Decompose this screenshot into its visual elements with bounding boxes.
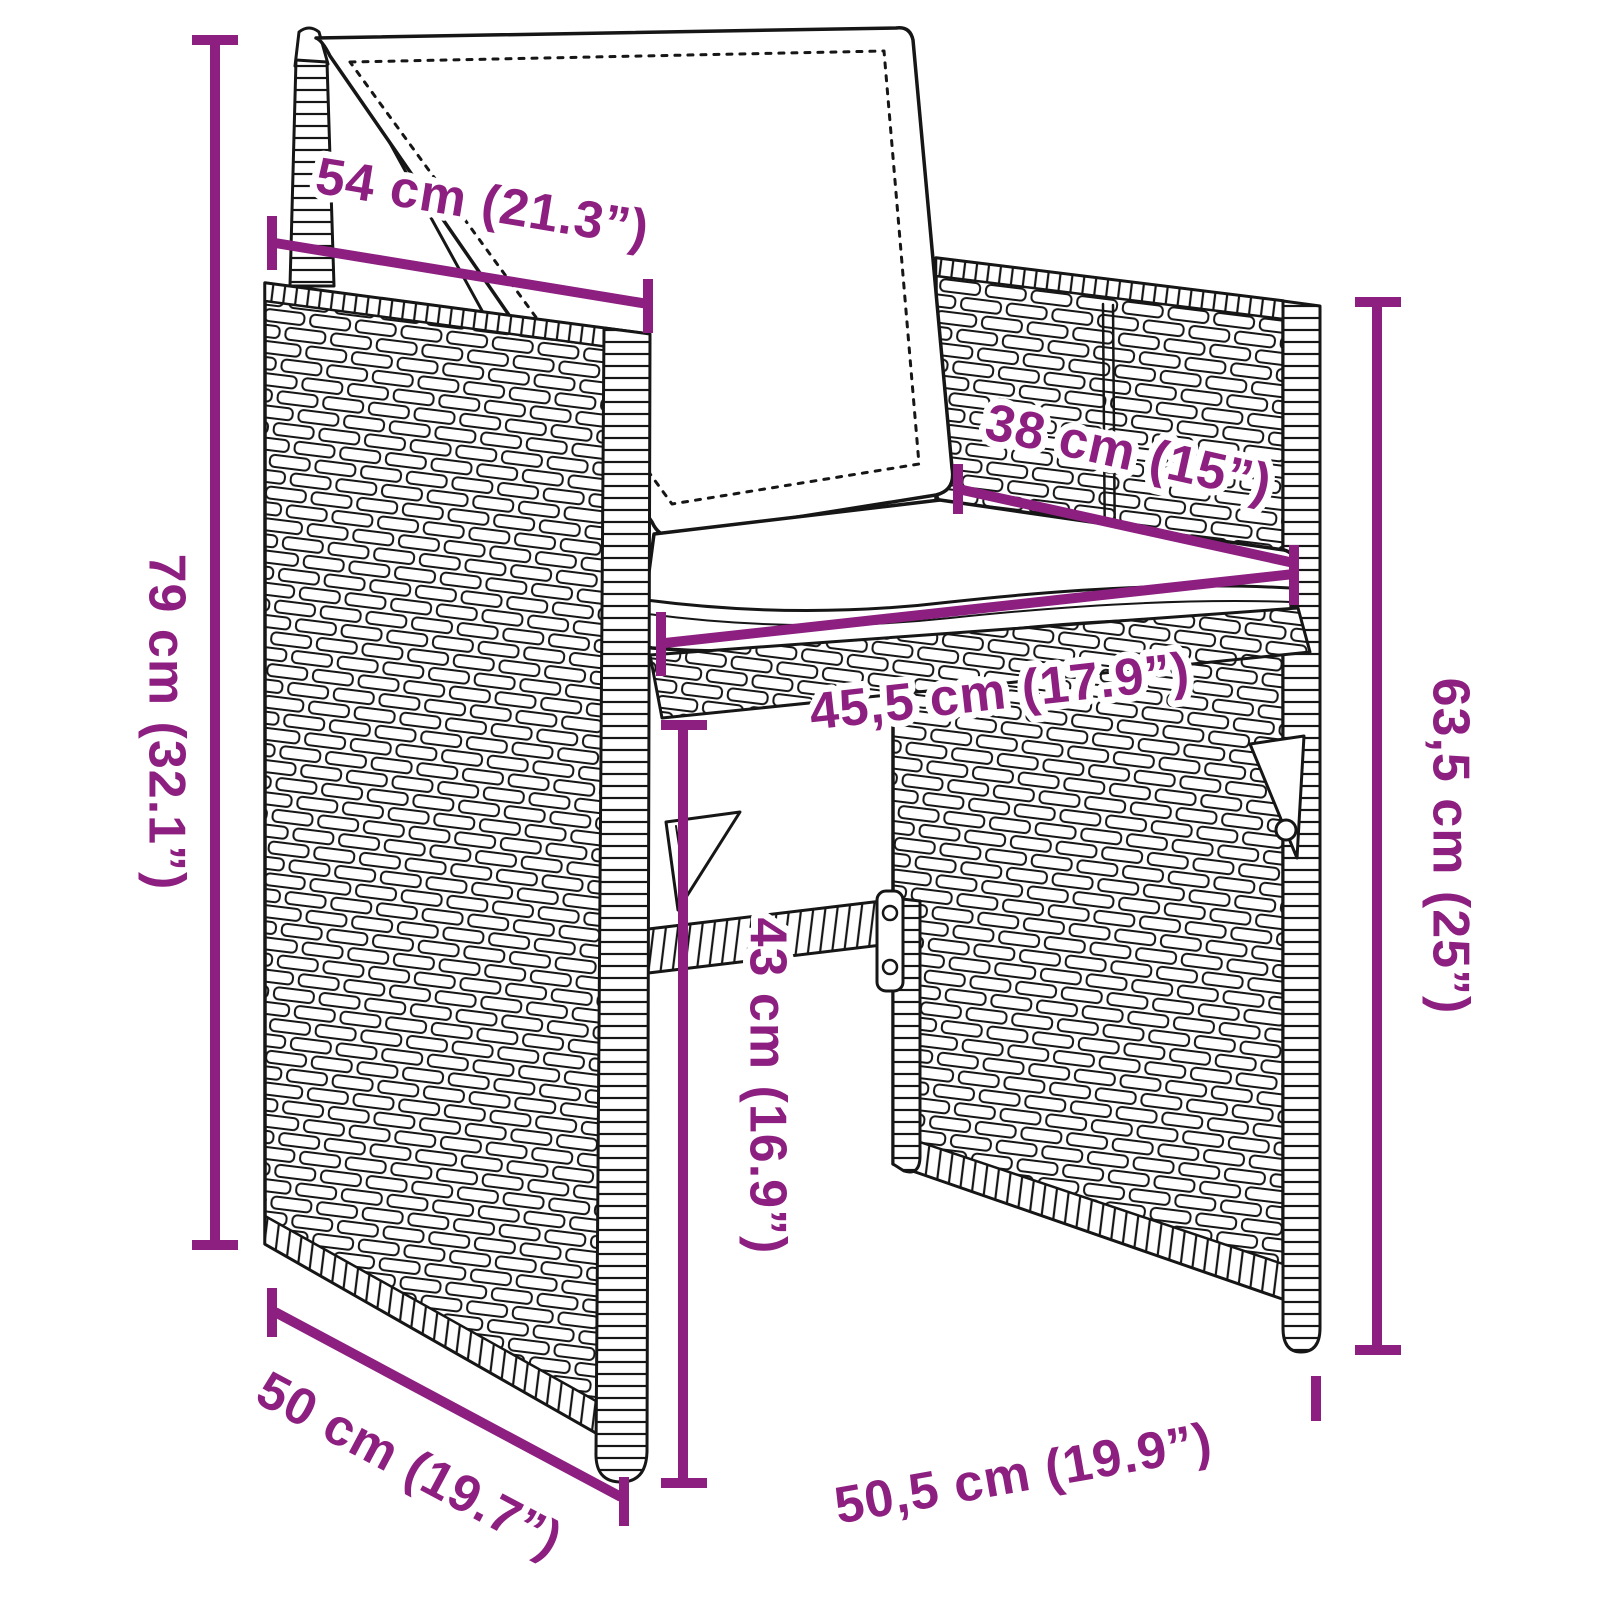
diagram-canvas: 79 cm (32.1”) 54 cm (21.3”) 38 cm (15”) … <box>0 0 1600 1600</box>
corner-bracket-right-eye <box>1276 820 1296 840</box>
stretcher-screw-bottom <box>883 960 897 974</box>
dim-label-armrest-height: 63,5 cm (25”) <box>1421 678 1479 1015</box>
dim-lines-total-height <box>192 40 238 1245</box>
chair-drawing <box>265 28 1320 1482</box>
dim-label-base-width: 50,5 cm (19.9”) <box>830 1412 1216 1535</box>
chair-dimension-diagram: 79 cm (32.1”) 54 cm (21.3”) 38 cm (15”) … <box>0 0 1600 1600</box>
dim-label-seat-height: 43 cm (16.9”) <box>738 918 796 1255</box>
front-left-leg <box>596 328 650 1482</box>
dim-label-total-height: 79 cm (32.1”) <box>137 554 195 891</box>
dim-lines-armrest-height <box>1355 302 1401 1350</box>
stretcher-screw-top <box>883 906 897 920</box>
